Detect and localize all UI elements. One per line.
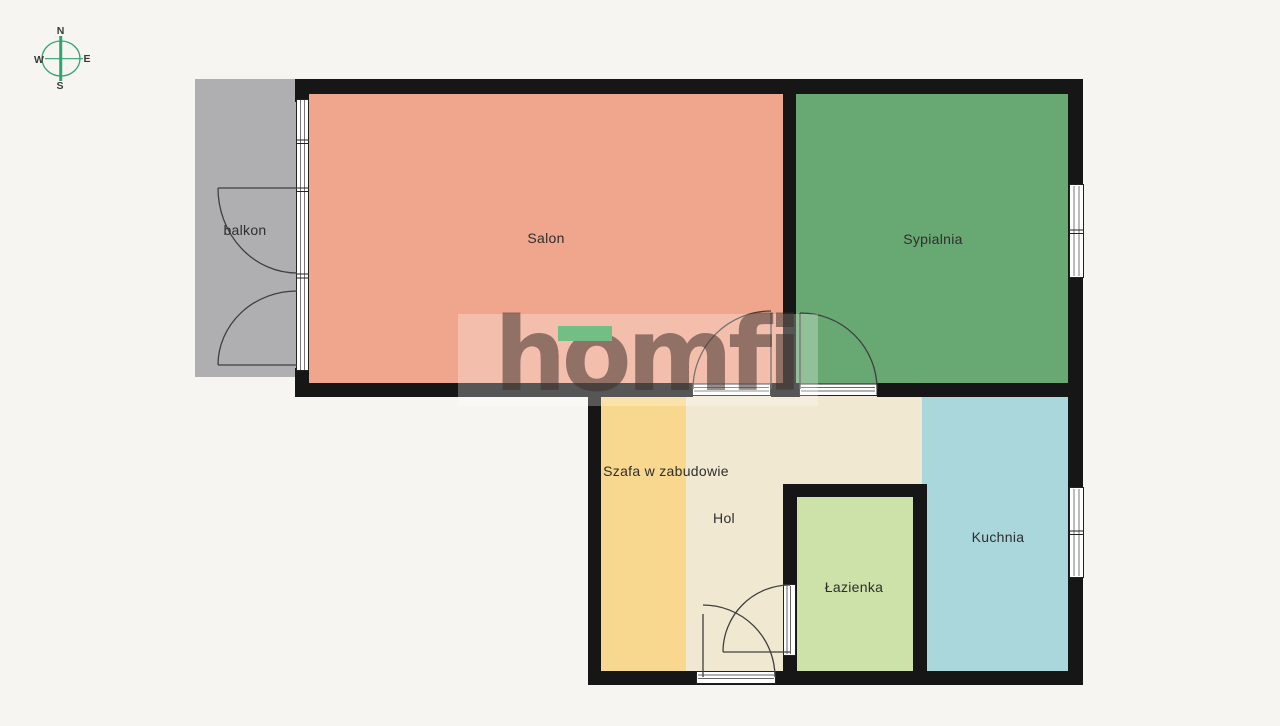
compass-graphic (0, 0, 120, 110)
compass-label-north: N (57, 25, 65, 37)
room-label-szafa: Szafa w zabudowie (603, 463, 729, 479)
compass-label-south: S (56, 80, 63, 92)
room-label-kuchnia: Kuchnia (972, 529, 1025, 545)
threshold-lazienka-door (784, 585, 796, 656)
window-sypialnia (1070, 185, 1084, 278)
room-label-salon: Salon (527, 230, 564, 246)
window-salon-balcony (296, 100, 309, 371)
compass-label-west: W (34, 54, 44, 66)
room-label-lazienka: Łazienka (825, 579, 883, 595)
threshold-entrance-door (697, 672, 776, 684)
door-balcony-lower (218, 291, 297, 365)
door-lazienka (723, 585, 790, 652)
room-label-balkon: balkon (223, 222, 266, 238)
room-label-sypialnia: Sypialnia (903, 231, 963, 247)
floor-plan: N E S W (0, 0, 1280, 726)
room-label-hol: Hol (713, 510, 735, 526)
door-entrance (703, 605, 775, 677)
window-kuchnia (1070, 488, 1084, 578)
watermark-brand-text: homfi (494, 306, 854, 406)
compass-rose: N E S W (0, 0, 120, 110)
watermark-accent-bar (558, 326, 612, 341)
compass-label-east: E (83, 53, 90, 65)
